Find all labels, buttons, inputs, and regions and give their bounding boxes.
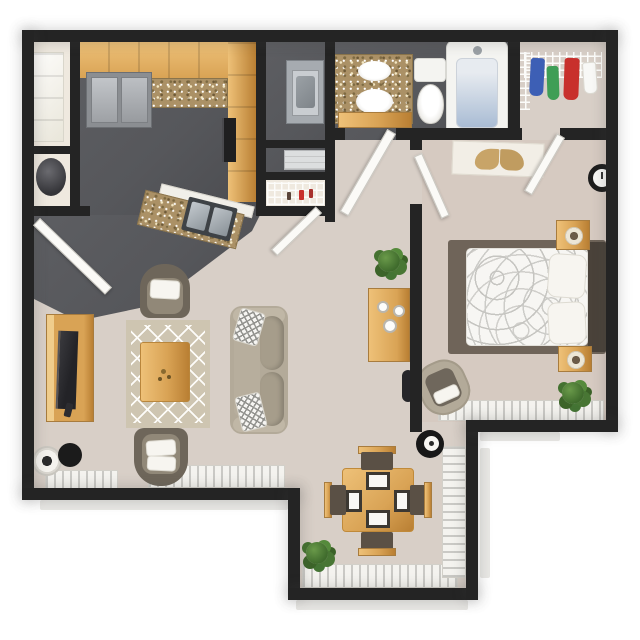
bathtub-basin	[456, 58, 498, 128]
washer-drum	[296, 76, 315, 108]
tv-screen	[56, 331, 79, 410]
barrel-chair-top-pillow	[150, 279, 181, 300]
placemat-top	[366, 472, 390, 490]
wall-dining-left	[288, 488, 300, 600]
coffee-table-decor-3	[158, 377, 162, 381]
wall-closet-column	[70, 30, 80, 214]
clock-hand	[601, 172, 603, 179]
wall-bedroom-bottom	[466, 420, 618, 432]
dining-chair-left-seat	[330, 485, 346, 515]
sill-bedroom-bottom	[480, 432, 560, 441]
wall-washer-divider	[262, 140, 335, 148]
pantry-wire-shelf	[267, 182, 324, 205]
fan-leaf-left	[475, 148, 500, 170]
dining-chair-right	[410, 482, 432, 518]
ceiling-fan-panel	[451, 140, 544, 177]
wall-bedroom-left-upper	[410, 128, 422, 150]
barrel-chair-bottom	[134, 428, 188, 486]
bathtub	[446, 40, 508, 136]
toilet-tank	[414, 58, 446, 82]
sideboard-decor-3	[383, 319, 397, 333]
wall-dryer-divider	[262, 172, 335, 180]
floor-lamp-dining-finial	[429, 441, 434, 446]
fridge-door-left	[91, 77, 118, 123]
placemat-bottom	[366, 510, 390, 528]
pantry-item-red	[299, 190, 304, 200]
coffee-table-decor-2	[167, 375, 171, 379]
bedroom-plant	[562, 382, 584, 404]
coffee-table	[140, 342, 190, 402]
wall-outer-top	[22, 30, 618, 42]
bathtub-faucet	[473, 46, 482, 55]
range-oven	[222, 118, 236, 162]
placemat-right	[394, 490, 410, 512]
dining-chair-top-seat	[361, 452, 393, 470]
dining-chair-bottom	[358, 532, 396, 556]
wall-living-bottom	[22, 488, 300, 500]
window-dining-right	[442, 446, 466, 578]
clothes-white	[582, 62, 598, 95]
lamp-bottom	[567, 351, 585, 369]
wall-outer-right	[606, 30, 618, 432]
clothes-blue	[529, 58, 545, 97]
bed-pillow-top	[547, 253, 588, 300]
water-heater	[36, 158, 66, 196]
vanity-sink-mirror	[358, 61, 391, 81]
nightstand-bottom	[558, 346, 592, 372]
tv-console	[46, 314, 94, 422]
coffee-table-decor-1	[161, 369, 166, 374]
vanity-cabinet-front	[338, 112, 412, 128]
sideboard-decor-2	[393, 305, 405, 317]
toilet-bowl	[417, 84, 444, 124]
pantry-item-red-2	[309, 189, 313, 198]
floorplan-scene	[0, 0, 640, 640]
lamp-top	[565, 227, 583, 245]
dining-chair-bottom-rail	[358, 548, 396, 556]
wall-bath-bottom-left	[331, 128, 345, 140]
wall-dining-right	[466, 420, 478, 600]
wall-pantry-bottom	[256, 206, 335, 216]
pantry-item-dark	[287, 192, 291, 200]
clothes-red	[563, 58, 579, 100]
bed-pillow-bottom	[547, 301, 587, 345]
window-dining-bottom	[302, 564, 458, 588]
fridge-door-right	[121, 77, 148, 123]
dining-plant	[306, 542, 328, 564]
linen-shelves	[33, 52, 64, 142]
barrel-chair-bottom-pillow-1	[145, 439, 176, 457]
floor-lamp-living	[32, 446, 62, 476]
sofa	[230, 306, 288, 434]
dining-chair-right-rail	[424, 482, 432, 518]
sideboard-decor-1	[377, 301, 389, 313]
side-table-round	[58, 443, 82, 467]
bed-headboard	[588, 242, 606, 352]
dining-chair-left	[324, 482, 346, 518]
wall-kitchen-laundry	[256, 30, 266, 214]
clothes-green	[546, 66, 559, 100]
nightstand-top	[556, 220, 590, 250]
sill-living-bottom	[40, 500, 288, 510]
sideboard	[368, 288, 410, 362]
barrel-chair-bottom-pillow-2	[147, 455, 177, 471]
fan-leaf-right	[500, 149, 525, 171]
sill-dining-bottom	[296, 600, 468, 610]
sink-basin-right	[208, 207, 233, 237]
wall-bedroom-left-lower	[410, 204, 422, 432]
sill-dining-right	[480, 448, 490, 578]
kitchen-countertop	[150, 78, 228, 108]
sink-basin-left	[186, 201, 211, 231]
dryer	[284, 150, 328, 170]
wall-dining-bottom	[288, 588, 478, 600]
washer	[286, 60, 324, 124]
placemat-left	[346, 490, 362, 512]
sofa-back-cushion-1	[260, 316, 284, 370]
floor-lamp-dining	[416, 430, 444, 458]
wall-laundry-right	[325, 30, 335, 222]
wall-outer-left	[22, 30, 34, 500]
barrel-chair-top	[140, 264, 190, 318]
hallway-plant	[378, 250, 400, 272]
vanity-sink	[356, 89, 393, 114]
dining-chair-top	[358, 446, 396, 470]
wall-tub-closet	[508, 30, 520, 135]
refrigerator	[86, 72, 152, 128]
